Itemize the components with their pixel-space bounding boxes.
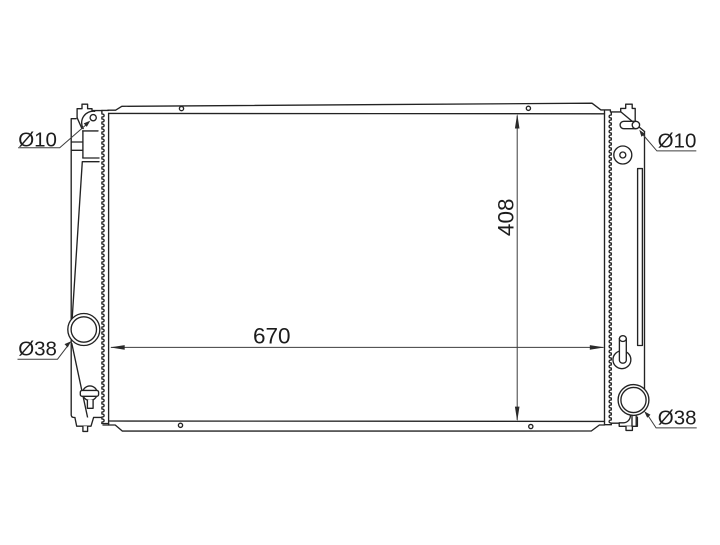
svg-text:408: 408 [494,199,519,237]
svg-text:Ø10: Ø10 [18,128,57,151]
svg-text:670: 670 [253,323,291,348]
svg-text:Ø10: Ø10 [658,130,697,153]
svg-text:Ø38: Ø38 [658,407,697,430]
svg-text:Ø38: Ø38 [18,337,57,360]
